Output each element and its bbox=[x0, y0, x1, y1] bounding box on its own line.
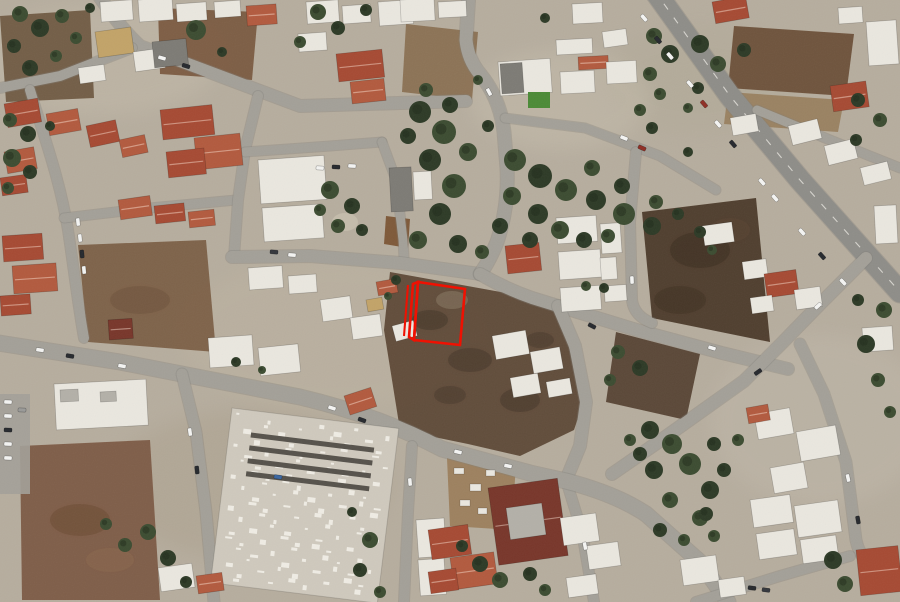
satellite-map bbox=[0, 0, 900, 602]
aerial-photo bbox=[0, 0, 900, 602]
photo-grain bbox=[0, 0, 900, 602]
